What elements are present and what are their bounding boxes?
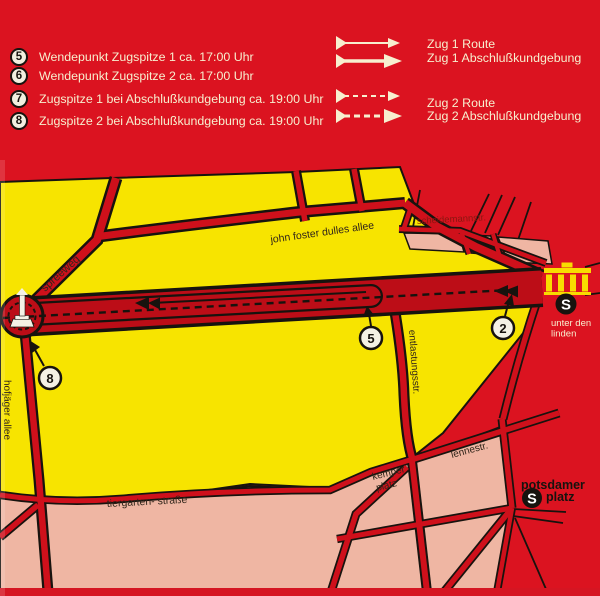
page-bottom-border <box>0 588 600 596</box>
map: S unter den linden potsdamer S platz spr… <box>0 160 600 596</box>
legend-item-label: Zugspitze 1 bei Abschlußkundgebung ca. 1… <box>39 92 323 106</box>
legend-badge-6: 6 <box>10 67 28 85</box>
legend-item-label: Wendepunkt Zugspitze 2 ca. 17:00 Uhr <box>39 69 254 83</box>
unter-den-linden-label2: linden <box>551 329 576 340</box>
svg-text:5: 5 <box>367 331 374 346</box>
legend-item: 6 Wendepunkt Zugspitze 2 ca. 17:00 Uhr <box>10 66 254 86</box>
unter-den-linden-label: unter den <box>551 318 591 329</box>
zug2-abschluss-label: Zug 2 Abschlußkundgebung <box>427 109 581 123</box>
legend-badge-8: 8 <box>10 112 28 130</box>
zug1-abschluss-arrow-icon <box>336 54 402 68</box>
zug2-route-arrow-icon <box>336 89 400 103</box>
legend-badge-5: 5 <box>10 48 28 66</box>
zug1-route-label: Zug 1 Route <box>427 37 495 51</box>
legend-item: 5 Wendepunkt Zugspitze 1 ca. 17:00 Uhr <box>10 47 254 67</box>
svg-text:2: 2 <box>499 321 506 336</box>
sbahn-icon: S <box>527 492 537 508</box>
legend-item-label: Wendepunkt Zugspitze 1 ca. 17:00 Uhr <box>39 50 254 64</box>
scan-edge-highlight <box>0 160 5 596</box>
legend-badge-7: 7 <box>10 90 28 108</box>
legend-item: 7 Zugspitze 1 bei Abschlußkundgebung ca.… <box>10 89 323 109</box>
legend-item: 8 Zugspitze 2 bei Abschlußkundgebung ca.… <box>10 111 323 131</box>
flyer-page: 5 Wendepunkt Zugspitze 1 ca. 17:00 Uhr 6… <box>0 0 600 596</box>
zug2-abschluss-arrow-icon <box>336 109 402 123</box>
sbahn-icon: S <box>561 297 571 314</box>
svg-text:8: 8 <box>46 371 53 386</box>
zug2-route-label: Zug 2 Route <box>427 96 495 110</box>
zug1-abschluss-label: Zug 1 Abschlußkundgebung <box>427 51 581 65</box>
legend-item-label: Zugspitze 2 bei Abschlußkundgebung ca. 1… <box>39 114 323 128</box>
potsdamer-platz-label2: platz <box>546 490 574 504</box>
route-arrows-key <box>336 34 406 128</box>
zug1-route-arrow-icon <box>336 36 400 50</box>
